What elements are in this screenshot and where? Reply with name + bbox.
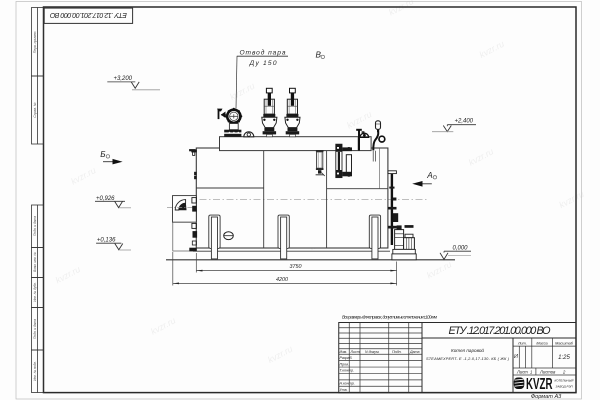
svg-text:1:25: 1:25 — [558, 355, 570, 361]
svg-text:КОТЕЛЬНЫЙ: КОТЕЛЬНЫЙ — [555, 379, 575, 383]
svg-text:+0,136: +0,136 — [97, 238, 116, 244]
svg-text:Листов: Листов — [539, 369, 556, 374]
svg-text:Подп.: Подп. — [392, 350, 402, 354]
svg-text:Подп. и дата: Подп. и дата — [33, 216, 37, 236]
svg-text:Инв. № дубл.: Инв. № дубл. — [33, 282, 37, 302]
svg-text:Ду 150: Ду 150 — [249, 60, 277, 67]
svg-text:Котел паровой: Котел паровой — [451, 347, 484, 353]
svg-text:ЕТУ .12.017.201.00.000 ВО: ЕТУ .12.017.201.00.000 ВО — [449, 325, 552, 337]
svg-text:Справ. №: Справ. № — [33, 102, 37, 118]
svg-text:Отвод пара: Отвод пара — [240, 49, 286, 57]
svg-text:Б: Б — [100, 150, 106, 159]
svg-text:Масштаб: Масштаб — [555, 341, 574, 345]
svg-text:Лит.: Лит. — [517, 341, 527, 345]
svg-text:STEAMEXPERT- Е -1,2-0,17-130-: STEAMEXPERT- Е -1,2-0,17-130- КБ ( ЖК ) — [426, 356, 510, 361]
svg-text:В: В — [316, 51, 322, 60]
svg-text:4200: 4200 — [276, 277, 288, 283]
svg-text:ЕТУ .12.017.201.00.000 ВО: ЕТУ .12.017.201.00.000 ВО — [49, 11, 127, 18]
svg-text:Пров.: Пров. — [340, 362, 349, 366]
svg-text:+2,400: +2,400 — [455, 119, 474, 125]
svg-text:Н.контр.: Н.контр. — [340, 382, 355, 386]
svg-text:Разраб.: Разраб. — [340, 356, 353, 360]
svg-text:1: 1 — [530, 369, 532, 374]
svg-text:Подп. и дата: Подп. и дата — [33, 319, 37, 339]
svg-text:+3,200: +3,200 — [114, 76, 133, 82]
svg-text:Утв.: Утв. — [340, 388, 348, 392]
svg-text:ЗАВОД РЭП: ЗАВОД РЭП — [556, 385, 574, 389]
svg-text:0,000: 0,000 — [453, 246, 469, 252]
svg-text:А: А — [426, 171, 433, 180]
svg-text:Лист: Лист — [350, 350, 360, 354]
svg-text:Инв. № подл.: Инв. № подл. — [33, 361, 37, 381]
svg-text:KVZR: KVZR — [526, 376, 553, 393]
svg-text:Т.контр.: Т.контр. — [340, 369, 355, 373]
svg-text:3750: 3750 — [290, 264, 302, 270]
svg-text:N докум.: N докум. — [365, 350, 380, 354]
svg-text:Лист: Лист — [516, 369, 528, 374]
svg-text:Взам. инв. №: Взам. инв. № — [33, 252, 37, 272]
svg-text:И: И — [514, 354, 518, 360]
svg-text:Перв. примен.: Перв. примен. — [33, 31, 37, 54]
svg-text:Масса: Масса — [536, 341, 547, 345]
svg-text:Формат А3: Формат А3 — [531, 394, 562, 400]
svg-text:Дата: Дата — [409, 350, 419, 354]
svg-text:Все размеры для справок , допу: Все размеры для справок , допустимые отк… — [342, 314, 438, 319]
svg-text:Изм.: Изм. — [340, 350, 348, 354]
